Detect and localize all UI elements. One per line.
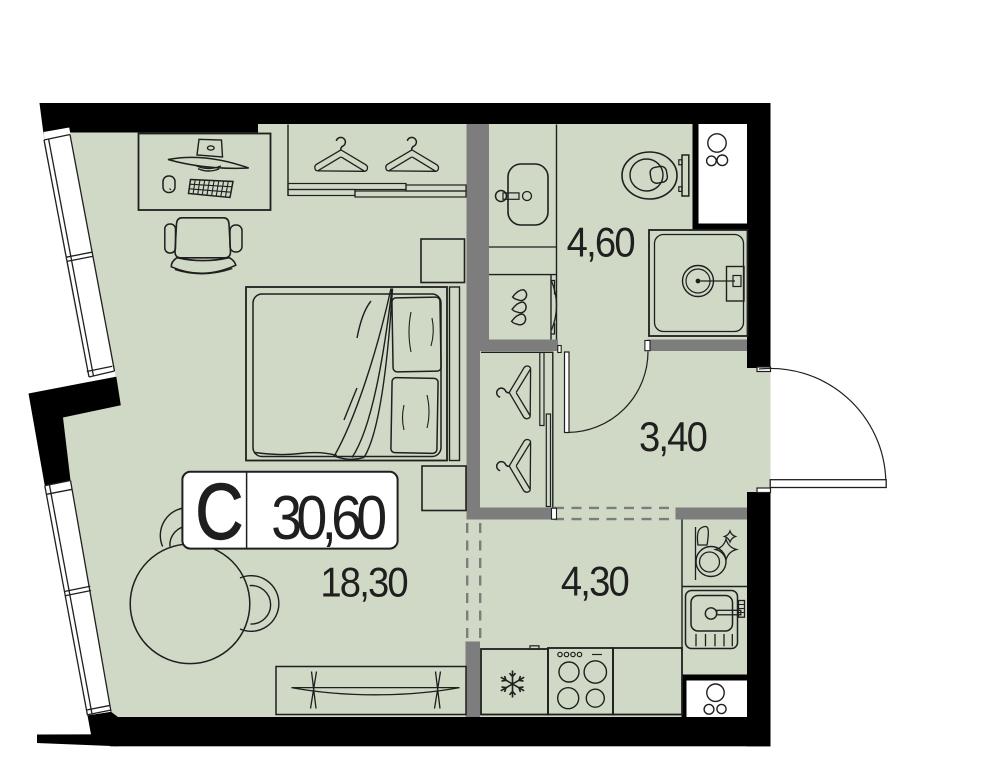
svg-text:4,30: 4,30: [561, 558, 629, 605]
svg-text:4,60: 4,60: [567, 219, 635, 266]
svg-text:C: C: [195, 468, 243, 556]
svg-text:18,30: 18,30: [320, 559, 407, 606]
svg-text:30,60: 30,60: [271, 482, 385, 553]
svg-text:3,40: 3,40: [639, 413, 707, 460]
